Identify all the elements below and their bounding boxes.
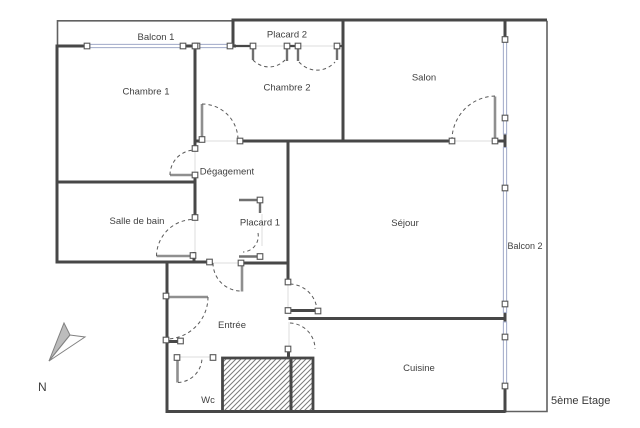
window-balcon2-2 <box>503 148 506 186</box>
swing-sejour-top <box>290 284 317 310</box>
wall-joint <box>295 43 301 49</box>
room-label-placard-2: Placard 2 <box>267 30 307 41</box>
wall-joint <box>502 334 508 340</box>
wall-joint <box>84 43 90 49</box>
floor-plan-page: Balcon 1 Placard 2 Chambre 1 Chambre 2 S… <box>0 0 640 428</box>
wall-joint <box>190 253 196 259</box>
wall-joint <box>502 115 508 121</box>
wall-joint <box>285 279 291 285</box>
room-label-cuisine: Cuisine <box>403 363 435 374</box>
swing-wc <box>178 358 202 383</box>
window-balcon2-4 <box>503 307 506 313</box>
window-balcon2-3 <box>503 191 506 302</box>
wall-joint <box>163 293 169 299</box>
swing-placard2-right <box>299 62 335 70</box>
window-balcon1-right <box>200 44 229 47</box>
window-balcon2-5 <box>503 322 506 335</box>
room-label-balcon-1: Balcon 1 <box>138 32 175 43</box>
wall-joint <box>192 146 198 152</box>
hatched-shaft-area <box>223 358 314 412</box>
doorway-guide-lines <box>180 46 494 357</box>
wall-joint <box>449 138 455 144</box>
wall-joint <box>192 215 198 221</box>
wall-joint <box>502 37 508 43</box>
wall-joint <box>285 308 291 314</box>
wall-joint <box>315 308 321 314</box>
wall-joint <box>502 185 508 191</box>
wall-joint <box>250 43 256 49</box>
swing-entree-1 <box>213 263 241 291</box>
wall-joint <box>334 43 340 49</box>
wall-joint <box>492 138 498 144</box>
room-label-chambre-1: Chambre 1 <box>123 87 170 98</box>
swing-placard1 <box>243 233 258 252</box>
north-label: N <box>38 380 47 394</box>
wall-joint <box>502 301 508 307</box>
room-label-sejour: Séjour <box>391 218 418 229</box>
door-leaves <box>157 97 496 383</box>
room-label-entree: Entrée <box>218 320 246 331</box>
swing-sejour-bottom <box>290 323 315 349</box>
room-label-salon: Salon <box>412 73 436 84</box>
wall-joint <box>210 355 216 361</box>
wall-joint <box>257 254 263 260</box>
wall-joint <box>163 337 169 343</box>
window-balcon1-left <box>90 44 181 47</box>
swing-chambre1 <box>170 150 195 175</box>
floor-plan-drawing: Balcon 1 Placard 2 Chambre 1 Chambre 2 S… <box>0 0 640 428</box>
wall-joint <box>502 383 508 389</box>
wall-joint <box>192 43 198 49</box>
room-label-chambre-2: Chambre 2 <box>264 83 311 94</box>
wall-joint <box>192 172 198 178</box>
swing-entree-2 <box>166 297 208 339</box>
swing-chambre2 <box>202 104 238 140</box>
room-label-wc: Wc <box>201 395 215 406</box>
wall-joint <box>199 137 205 143</box>
room-label-degagement: Dégagement <box>200 167 255 178</box>
swing-placard2-left <box>253 60 285 67</box>
wall-joint <box>284 43 290 49</box>
wall-joint <box>178 338 184 344</box>
wall-joint <box>180 43 186 49</box>
wall-joint <box>237 138 243 144</box>
room-label-balcon-2: Balcon 2 <box>507 241 542 251</box>
wall-joint <box>227 43 233 49</box>
wall-joint <box>285 346 291 352</box>
wall-joint <box>207 259 213 265</box>
floor-level-label: 5ème Etage <box>551 395 610 407</box>
room-label-salle-de-bain: Salle de bain <box>110 216 165 227</box>
wall-joint <box>257 197 263 203</box>
window-balcon2-6 <box>503 340 506 385</box>
wall-joint <box>174 355 180 361</box>
north-arrow-icon <box>49 323 85 361</box>
door-swing-arcs <box>157 60 496 383</box>
room-label-placard-1: Placard 1 <box>240 218 280 229</box>
swing-salon <box>452 96 495 140</box>
wall-joint <box>238 260 244 266</box>
